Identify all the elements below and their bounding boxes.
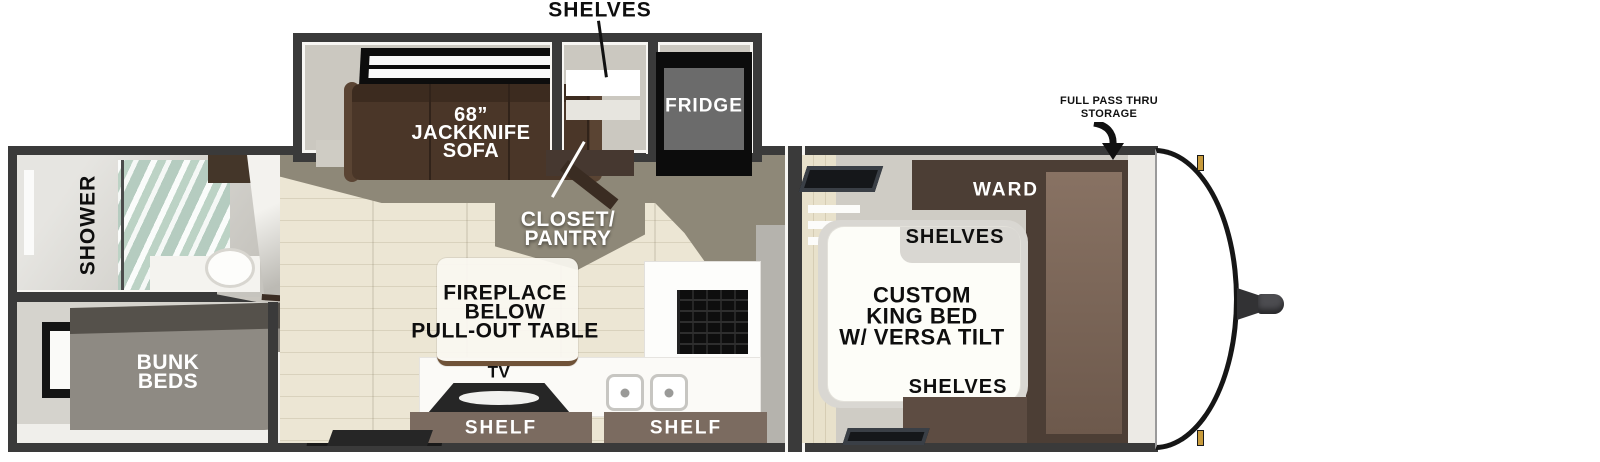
window-slat <box>369 56 551 65</box>
hitch-coupler <box>1258 294 1284 314</box>
toilet <box>205 248 255 288</box>
sofa-window <box>359 48 561 86</box>
label-bed-shelves-bottom: SHELVES <box>909 377 1008 397</box>
label-bed-shelves-top: SHELVES <box>906 227 1005 247</box>
front-cap <box>1155 148 1239 450</box>
front-cap-clip <box>1197 155 1204 171</box>
label-fireplace-line3: PULL-OUT TABLE <box>411 322 598 341</box>
label-shelves-callout: SHELVES <box>548 0 651 21</box>
label-storage-line2: STORAGE <box>1040 108 1178 121</box>
kitchen-wall <box>756 225 788 443</box>
bunk-room-wall <box>268 302 278 443</box>
slideout-shelf <box>566 70 640 96</box>
label-bunk-line2: BEDS <box>137 372 200 391</box>
label-bed-line2: KING BED <box>839 306 1004 327</box>
bathroom-window <box>24 170 34 255</box>
floorplan-canvas: SHELVES 68” JACKKNIFE SOFA FRIDGE SHOWER… <box>0 0 1600 462</box>
tv-screen <box>459 391 539 404</box>
label-closet-line2: PANTRY <box>521 229 616 248</box>
label-bed-line1: CUSTOM <box>839 285 1004 306</box>
label-shower: SHOWER <box>78 175 99 276</box>
label-bed-line3: W/ VERSA TILT <box>839 327 1004 348</box>
label-ward: WARD <box>973 181 1039 200</box>
window-slat <box>368 69 550 78</box>
kitchen-sink <box>650 374 688 411</box>
floor-vent <box>842 428 930 445</box>
label-shelf-left: SHELF <box>465 419 537 438</box>
label-pass-thru-storage: FULL PASS THRU STORAGE <box>1040 95 1178 121</box>
bedroom-front-trim <box>1128 155 1155 443</box>
roof-vent <box>799 166 883 192</box>
label-fridge: FRIDGE <box>665 97 743 116</box>
cooktop <box>680 290 748 354</box>
wardrobe-door <box>1046 172 1122 434</box>
label-shelf-right: SHELF <box>650 419 722 438</box>
bedroom-window-blind <box>808 205 860 213</box>
closet-pantry-cabinet <box>546 150 634 176</box>
label-sofa: SOFA <box>412 142 531 160</box>
label-tv: TV <box>488 364 511 381</box>
front-cap-clip <box>1197 430 1204 446</box>
storage-callout-arrow <box>1090 122 1124 160</box>
entry-step <box>327 430 433 446</box>
slideout-divider-wall <box>552 42 562 154</box>
slideout-shelf-lower <box>566 100 640 120</box>
label-storage-line1: FULL PASS THRU <box>1040 95 1178 108</box>
shower-glass-rail <box>121 160 124 292</box>
bathroom-wall <box>17 292 217 302</box>
kitchen-sink <box>606 374 644 411</box>
